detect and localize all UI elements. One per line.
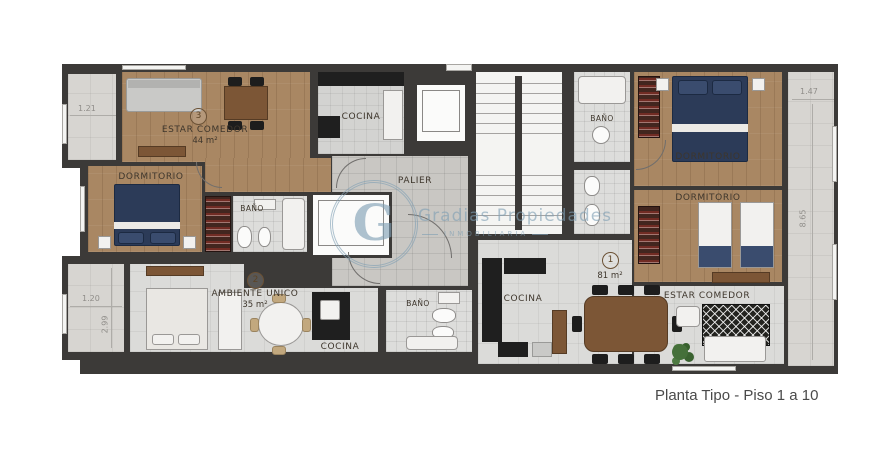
dining-table-u1 (584, 296, 668, 352)
window (62, 294, 67, 334)
bathtub-u2 (406, 336, 458, 350)
opening (446, 64, 472, 71)
area-label-u3: 44 m² (150, 136, 260, 146)
room-label-cocina-u1: COCINA (478, 294, 568, 304)
chair (618, 285, 634, 295)
unit-number-badge-u3: 3 (190, 108, 207, 125)
washbasin-u1 (592, 126, 610, 144)
dining-table-u3 (224, 86, 268, 120)
chair (644, 354, 660, 364)
room-label-bano-u3: BAÑO (234, 204, 270, 213)
watermark-name: Gradias Propiedades (418, 206, 612, 226)
chair (618, 354, 634, 364)
fridge-u1 (532, 342, 552, 357)
watermark: G Gradias Propiedades INMOBILIARIA (330, 178, 590, 268)
window (62, 104, 67, 144)
dimension-line (70, 306, 122, 307)
balcony-right (788, 72, 834, 366)
pillow (178, 334, 200, 345)
dimension-label-bottom-left-depth: 2.99 (101, 310, 110, 340)
floor-plan-image: 3 ESTAR COMEDOR 44 m² DORMITORIO BAÑO CO… (0, 0, 892, 450)
dimension-label-bottom-left-width: 1.20 (82, 294, 100, 303)
bed-stripe (114, 222, 180, 229)
stove-u2 (320, 300, 340, 320)
shelf-u2 (146, 266, 204, 276)
toilet-u2 (432, 308, 456, 323)
chair (572, 316, 582, 332)
room-label-cocina-u3: COCINA (318, 112, 404, 122)
nightstand (183, 236, 196, 249)
room-label-dormitorio-u3: DORMITORIO (106, 172, 196, 182)
room-label-dormitorio-u1-a: DORMITORIO (634, 152, 782, 162)
room-label-bano-u1: BAÑO (574, 114, 630, 123)
pillow (118, 232, 144, 244)
nightstand (752, 78, 765, 91)
elevator-car (422, 90, 460, 132)
kitchen-sink-u1 (498, 342, 528, 357)
watermark-rule-right (532, 234, 548, 235)
sofa-u1 (704, 336, 766, 362)
bed-stripe (672, 124, 748, 132)
area-label-u2: 35 m² (200, 300, 310, 310)
chair (228, 77, 242, 86)
plant (672, 344, 688, 360)
room-label-estar-comedor-u1: ESTAR COMEDOR (652, 291, 762, 301)
kitchen-counter-u3 (318, 72, 404, 86)
elevator-top (414, 82, 468, 144)
window (80, 186, 85, 232)
pillow (678, 80, 708, 95)
nightstand (656, 78, 669, 91)
kitchen-cabinet-u1 (552, 310, 567, 354)
hall-u3 (205, 158, 331, 192)
room-label-dormitorio-u1-b: DORMITORIO (634, 193, 782, 203)
room-label-cocina-u2: COCINA (300, 342, 380, 352)
pillow (150, 232, 176, 244)
dimension-label-top-left: 1.21 (78, 104, 96, 113)
sideboard-u3 (138, 146, 186, 157)
area-label-u1: 81 m² (584, 271, 636, 281)
single-bed-blanket (741, 246, 773, 267)
bathtub-u1 (578, 76, 626, 104)
balcony-top-left (68, 74, 116, 160)
chair (592, 354, 608, 364)
pillow (152, 334, 174, 345)
bidet-u3 (258, 227, 271, 247)
dimension-line (70, 115, 116, 116)
room-label-ambiente-unico: AMBIENTE UNICO (200, 289, 310, 299)
chair (272, 346, 286, 355)
chair (250, 77, 264, 86)
window (832, 126, 837, 182)
chair (250, 318, 259, 332)
dimension-label-right-width: 1.47 (800, 87, 818, 96)
toilet-u3 (237, 226, 252, 248)
plan-caption: Planta Tipo - Piso 1 a 10 (655, 387, 818, 404)
sink-u2 (438, 292, 460, 304)
window (672, 366, 736, 371)
chair (592, 285, 608, 295)
watermark-rule-left (422, 234, 438, 235)
closet-u1-b (638, 206, 660, 264)
single-bed-blanket (699, 246, 731, 267)
dimension-line (812, 104, 813, 360)
room-label-estar-comedor-u3: ESTAR COMEDOR (150, 125, 260, 135)
watermark-letter: G (353, 193, 396, 252)
dimension-line (792, 99, 834, 100)
window (122, 65, 186, 70)
window (832, 244, 837, 300)
dimension-line (111, 268, 112, 348)
dimension-label-right-depth: 8.65 (799, 204, 808, 234)
pillow (712, 80, 742, 95)
chair (302, 318, 311, 332)
unit-number-badge-u1: 1 (602, 252, 619, 269)
watermark-tagline: INMOBILIARIA (444, 230, 528, 238)
bathtub-u3 (282, 198, 305, 250)
closet-u3 (205, 196, 231, 252)
balcony-bottom-left (68, 264, 124, 352)
watermark-logo: G (330, 180, 418, 268)
unit-number-badge-u2: 2 (247, 272, 264, 289)
armchair-u1 (676, 306, 700, 327)
nightstand (98, 236, 111, 249)
tv-console-u1 (712, 272, 770, 283)
room-label-bano-u2: BAÑO (396, 299, 440, 308)
sofa-back (128, 80, 200, 88)
